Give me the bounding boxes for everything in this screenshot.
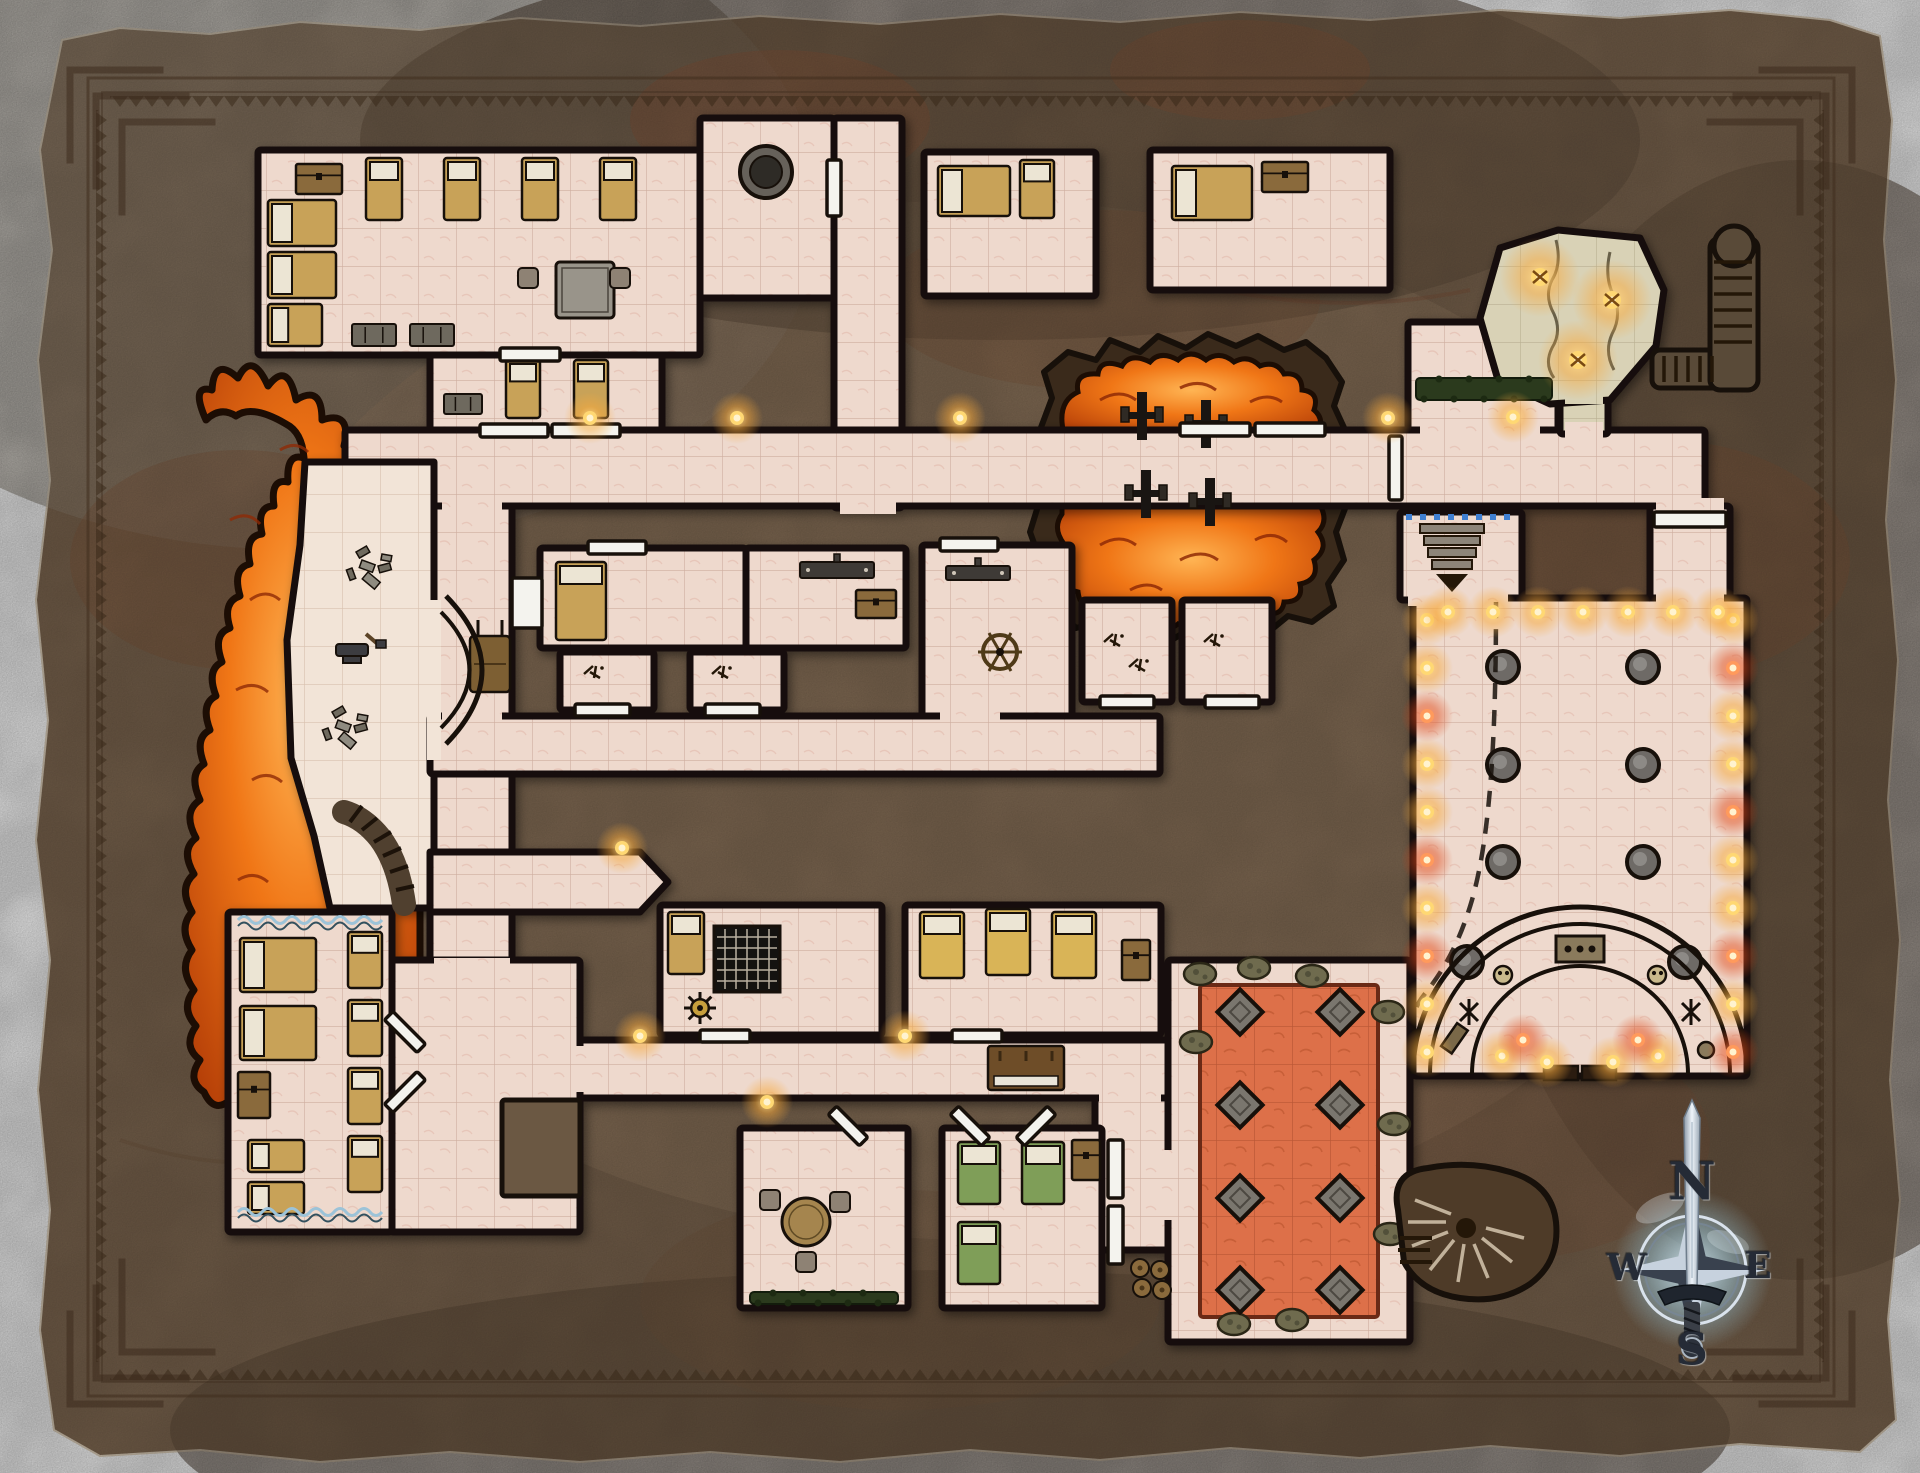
moss-tuft [875, 1300, 882, 1307]
rubble-stone [1199, 1043, 1204, 1048]
pillow-icon [352, 1004, 378, 1021]
pillow-icon [244, 942, 264, 988]
pillow-icon [1176, 170, 1196, 216]
rubble-stone [1381, 1007, 1387, 1013]
light-center [1730, 1001, 1737, 1008]
light-center [1424, 1049, 1431, 1056]
light-center [902, 1033, 909, 1040]
pillow-icon [1056, 916, 1092, 934]
floor-temple-carpet [1200, 985, 1378, 1317]
barrel-bung [1160, 1288, 1165, 1293]
light-center [1385, 415, 1392, 422]
wall-opening-14 [1099, 1090, 1161, 1106]
rubble-stone [1203, 975, 1208, 980]
light-center [1730, 809, 1737, 816]
chest-latch [1282, 171, 1288, 178]
light-center [1730, 857, 1737, 864]
door-14 [827, 160, 841, 216]
winch-block [1159, 485, 1167, 500]
door-7 [512, 578, 542, 628]
round-pillar-highlight [1493, 755, 1507, 769]
anvil-base [343, 656, 361, 663]
chest-latch [251, 1086, 257, 1093]
door-20 [1108, 1140, 1123, 1198]
stool-icon [760, 1190, 780, 1210]
light-center [619, 845, 626, 852]
light-center [1424, 713, 1431, 720]
round-pillar-highlight [1633, 657, 1647, 671]
light-center [1730, 1049, 1737, 1056]
light-center [1424, 953, 1431, 960]
moss-tuft [815, 1300, 822, 1307]
light-center [1625, 609, 1632, 616]
bone-dot [728, 666, 732, 670]
moss-tuft [755, 1300, 762, 1307]
compass-label-south: S [1676, 1325, 1708, 1376]
pillow-icon [370, 162, 398, 180]
moss-tuft [1541, 396, 1548, 403]
chest-latch [1133, 952, 1139, 959]
pillow-icon [272, 308, 288, 342]
rubble-icon [1372, 1001, 1404, 1023]
pillow-icon [1024, 164, 1050, 181]
floor-mid-cell-2 [690, 652, 784, 710]
rubble-icon [1296, 965, 1328, 987]
round-pillar-highlight [1633, 755, 1647, 769]
pillow-icon [352, 936, 378, 953]
rubble-stone [1315, 977, 1320, 982]
door-6 [940, 538, 998, 551]
light-center [587, 415, 594, 422]
chest-latch [873, 598, 879, 605]
machine-icon [800, 562, 874, 578]
rubble-stone [1237, 1325, 1242, 1330]
rubble-stone [1391, 1013, 1396, 1018]
floor-east-cell-1 [1082, 600, 1172, 702]
door-3 [1255, 423, 1325, 436]
floor-corridor-mid [430, 716, 1160, 774]
moss-tuft [860, 1290, 867, 1297]
sun-wheel-hub [697, 1005, 703, 1011]
light-center [1490, 609, 1497, 616]
pillow-icon [244, 1010, 264, 1056]
machine-bolt [952, 571, 956, 575]
light-center [957, 415, 964, 422]
light-center [1730, 761, 1737, 768]
rubble-icon [1184, 963, 1216, 985]
pillow-icon [962, 1146, 996, 1164]
wall-opening-3 [427, 600, 441, 760]
rubble-stone [1397, 1125, 1402, 1130]
floor-mid-cell-1 [560, 652, 654, 710]
moss-tuft [800, 1290, 807, 1297]
light-center [1730, 713, 1737, 720]
moss-tuft [1466, 376, 1473, 383]
wall-opening-13 [570, 1046, 588, 1092]
barrel-bung [1138, 1266, 1143, 1271]
chest-icon [1072, 1140, 1100, 1180]
light-center [1730, 665, 1737, 672]
rubble-icon [1378, 1113, 1410, 1135]
chest-latch [316, 173, 322, 180]
footlocker-icon [444, 394, 482, 414]
pillow-icon [510, 364, 536, 381]
door-0 [480, 424, 548, 437]
rubble-stone [1305, 971, 1311, 977]
rubble-stone [1285, 1315, 1291, 1321]
barrel-bung [1158, 1268, 1163, 1273]
pillow-icon [924, 916, 960, 934]
pillow-icon [252, 1144, 269, 1168]
floor-south-corridor [575, 1040, 1181, 1098]
dungeon-map-page: N W E S [0, 0, 1920, 1473]
rubble-stone [1247, 963, 1253, 969]
table-icon [556, 262, 614, 318]
pillow-icon [962, 1226, 996, 1244]
door-13 [1654, 512, 1726, 527]
floor-east-cell-2 [1182, 600, 1272, 702]
winch-block [1121, 407, 1129, 422]
debris-icon [381, 554, 392, 562]
door-5 [588, 541, 646, 554]
pillow-icon [448, 162, 476, 180]
bone-dot [600, 666, 604, 670]
pillow-icon [942, 170, 962, 212]
light-center [1445, 609, 1452, 616]
dais-altar [1556, 936, 1604, 962]
stool-icon [830, 1192, 850, 1212]
pillow-icon [526, 162, 554, 180]
rubble-stone [1193, 969, 1199, 975]
moss-tuft [830, 1290, 837, 1297]
door-2 [1180, 423, 1250, 436]
pillow-icon [252, 1186, 269, 1210]
debris-icon [357, 714, 368, 722]
rubble-icon [1238, 957, 1270, 979]
door-23 [952, 1030, 1002, 1042]
anvil-icon [336, 644, 368, 656]
moss-tuft [785, 1300, 792, 1307]
pillow-icon [272, 256, 292, 294]
pillow-icon [990, 913, 1026, 931]
stone-platform-icon [502, 1100, 580, 1196]
winch-crossbar [1130, 490, 1162, 497]
light-center [1535, 609, 1542, 616]
winch-block [1189, 493, 1197, 508]
moss-tuft [1526, 376, 1533, 383]
light-center [1424, 761, 1431, 768]
round-pillar-highlight [1633, 852, 1647, 866]
teeth-border-right [1814, 110, 1826, 1362]
moss-tuft [1496, 376, 1503, 383]
stool-icon [796, 1252, 816, 1272]
rubble-icon [1218, 1313, 1250, 1335]
compass-label-north: N [1668, 1152, 1716, 1213]
barrel-bung [1140, 1286, 1145, 1291]
light-center [1424, 857, 1431, 864]
machine-bolt [1000, 571, 1004, 575]
light-center [1510, 414, 1517, 421]
teeth-border-top [110, 96, 1812, 108]
chest-icon [238, 1072, 270, 1118]
pillow-icon [352, 1140, 378, 1157]
light-center [1580, 609, 1587, 616]
footlocker-icon [352, 324, 396, 346]
rubble-stone [1227, 1319, 1233, 1325]
light-center [1635, 1037, 1642, 1044]
light-center [1730, 905, 1737, 912]
chair-icon [610, 268, 630, 288]
floor-main-corridor [345, 430, 1705, 506]
door-22 [700, 1030, 750, 1042]
teeth-border-left [96, 110, 108, 1362]
light-center [1520, 1037, 1527, 1044]
pillow-icon [272, 204, 292, 242]
light-center [1610, 1059, 1617, 1066]
chest-icon [1122, 940, 1150, 980]
moss-tuft [1451, 396, 1458, 403]
wall-opening-12 [434, 958, 510, 1024]
footlocker-icon [410, 324, 454, 346]
wall-opening-0 [840, 498, 896, 514]
pillow-icon [1026, 1146, 1060, 1164]
machine-lever [975, 558, 981, 566]
pillow-icon [560, 566, 602, 584]
rubble-stone [1393, 1235, 1398, 1240]
wheel-hub [996, 648, 1004, 656]
wall-opening-1 [442, 496, 502, 514]
pillow-icon [352, 1072, 378, 1089]
light-center [1715, 609, 1722, 616]
door-4 [500, 348, 560, 361]
light-center [1670, 609, 1677, 616]
moss-tuft [1421, 396, 1428, 403]
hammer-head [376, 640, 386, 648]
moss-tuft [1481, 396, 1488, 403]
bone-dot [1120, 634, 1124, 638]
light-center [1424, 665, 1431, 672]
winch-block [1223, 493, 1231, 508]
door-9 [705, 704, 760, 716]
chair-icon [518, 268, 538, 288]
light-center [1730, 953, 1737, 960]
rubble-icon [1276, 1309, 1308, 1331]
light-center [1544, 1059, 1551, 1066]
moss-tuft [845, 1300, 852, 1307]
compass-label-west: W [1607, 1247, 1647, 1289]
winch-block [1125, 485, 1133, 500]
door-21 [1108, 1206, 1123, 1264]
door-12 [1389, 436, 1402, 500]
winch-crossbar [1194, 498, 1226, 505]
light-center [764, 1099, 771, 1106]
light-center [734, 415, 741, 422]
machine-bolt [806, 568, 810, 572]
light-center [1424, 905, 1431, 912]
bone-dot [1145, 659, 1149, 663]
rubble-icon [1180, 1031, 1212, 1053]
light-center [637, 1033, 644, 1040]
rubble-stone [1383, 1229, 1389, 1235]
pillow-icon [578, 364, 604, 381]
wall-opening-10 [940, 708, 1000, 724]
organ-keys [994, 1076, 1058, 1086]
rubble-stone [1257, 969, 1262, 974]
winch-crossbar [1126, 412, 1158, 419]
machine-lever [834, 554, 840, 562]
rubble-stone [1295, 1321, 1300, 1326]
machine-bolt [864, 568, 868, 572]
pillow-icon [604, 162, 632, 180]
wall-opening-11 [504, 858, 520, 906]
compass-label-east: E [1744, 1245, 1771, 1287]
well-hole [750, 156, 782, 188]
bone-dot [1220, 634, 1224, 638]
wall-opening-5 [1565, 422, 1603, 438]
door-11 [1205, 696, 1259, 708]
rubble-stone [1387, 1119, 1393, 1125]
light-center [1424, 1001, 1431, 1008]
teeth-border-bottom [110, 1368, 1812, 1380]
light-center [1424, 809, 1431, 816]
door-8 [575, 704, 630, 716]
pillow-icon [672, 916, 700, 934]
winch-block [1155, 407, 1163, 422]
door-10 [1100, 696, 1154, 708]
round-pillar-highlight [1493, 852, 1507, 866]
wall-opening-15 [1160, 1150, 1176, 1220]
moss-tuft [770, 1290, 777, 1297]
rubble-stone [1189, 1037, 1195, 1043]
spiral-staircase [1397, 1165, 1557, 1300]
chest-latch [1083, 1152, 1089, 1159]
moss-tuft [1436, 376, 1443, 383]
